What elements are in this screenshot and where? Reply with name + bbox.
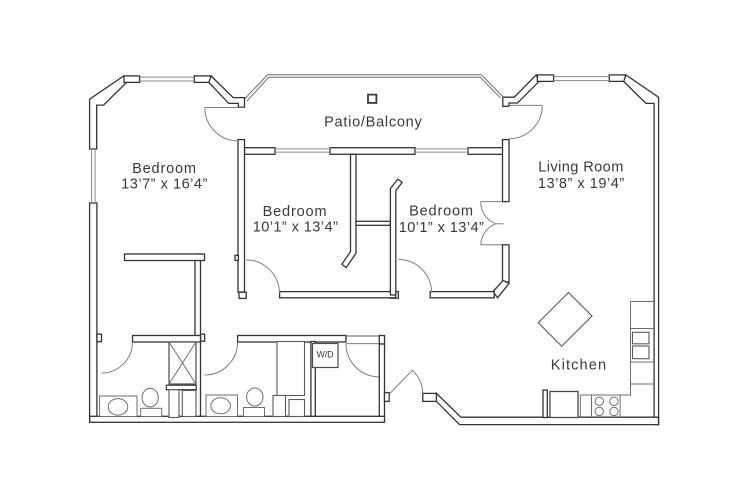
svg-text:Bedroom: Bedroom	[132, 161, 197, 177]
svg-text:Bedroom: Bedroom	[263, 204, 328, 220]
svg-text:10’1” x 13’4”: 10’1” x 13’4”	[399, 220, 485, 236]
svg-text:Kitchen: Kitchen	[551, 357, 607, 373]
svg-text:Living Room: Living Room	[538, 160, 624, 176]
svg-text:13’7” x 16’4”: 13’7” x 16’4”	[121, 176, 208, 192]
svg-text:13’8” x 19’4”: 13’8” x 19’4”	[538, 176, 625, 192]
svg-text:W/D: W/D	[316, 350, 333, 360]
svg-text:10’1” x 13’4”: 10’1” x 13’4”	[253, 219, 339, 235]
svg-text:Bedroom: Bedroom	[409, 204, 474, 220]
svg-text:Patio/Balcony: Patio/Balcony	[324, 114, 422, 130]
